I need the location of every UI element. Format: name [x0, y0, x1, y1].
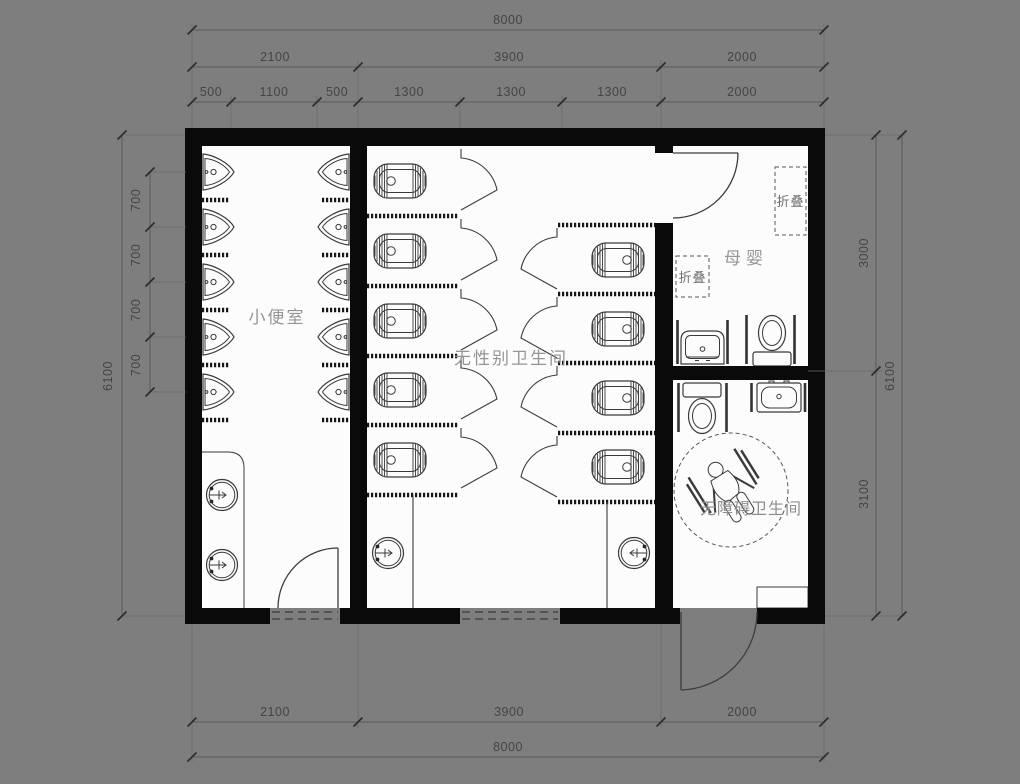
round-sink [207, 480, 238, 511]
wall-interior-right [655, 223, 673, 608]
dim-label: 1100 [260, 85, 289, 99]
wall-bottom-segment [340, 608, 460, 624]
wall-right [808, 128, 825, 624]
dim-label: 700 [129, 244, 143, 266]
dim-label: 6100 [101, 361, 115, 391]
accessible-sink [757, 381, 801, 412]
wall-bottom-segment [757, 608, 825, 624]
dimensions-bottom: 2100 3900 2000 8000 [188, 625, 829, 762]
dim-label: 2000 [727, 85, 757, 99]
wall-interior-left [350, 146, 367, 608]
round-sink [373, 538, 404, 569]
mother-baby-label: 母婴 [724, 249, 768, 268]
folding-table-label: 折叠 [678, 270, 706, 285]
folding-table-label: 折叠 [776, 194, 804, 209]
dimensions-left: 700 700 700 700 6100 [101, 131, 186, 621]
wall-interior-right-stub [655, 146, 673, 153]
dim-label: 2000 [727, 50, 757, 64]
door-swing-accessible [681, 612, 757, 690]
dim-label: 2000 [727, 705, 757, 719]
dim-label: 3100 [857, 479, 871, 509]
door-threshold [272, 612, 338, 619]
dim-label: 1300 [496, 85, 526, 99]
round-sink [619, 538, 650, 569]
dim-label: 700 [129, 354, 143, 376]
dim-label: 1300 [597, 85, 627, 99]
round-sink [207, 550, 238, 581]
dimensions-top: 8000 2100 3900 2000 500 1100 500 1300 13… [188, 13, 829, 128]
urinal-room-label: 小便室 [249, 308, 306, 327]
entrance-threshold [462, 612, 558, 619]
dim-label: 3000 [857, 238, 871, 268]
dim-label: 3900 [494, 705, 524, 719]
wall-left [185, 128, 202, 624]
dim-label: 8000 [493, 740, 523, 754]
dim-label: 2100 [260, 705, 290, 719]
wall-top [185, 128, 825, 146]
floor-plan-page: 小便室 [0, 0, 1020, 784]
dim-label: 3900 [494, 50, 524, 64]
dim-label: 500 [326, 85, 348, 99]
dim-label: 700 [129, 299, 143, 321]
wall-bottom-segment [185, 608, 270, 624]
floor-plan: 小便室 [0, 0, 1020, 784]
dim-label: 8000 [493, 13, 523, 27]
dim-label: 1300 [394, 85, 424, 99]
wall-room-divider [655, 366, 808, 380]
dim-label: 700 [129, 189, 143, 211]
dim-label: 2100 [260, 50, 290, 64]
counter-sink [681, 331, 724, 364]
dim-label: 500 [200, 85, 222, 99]
unisex-room-label: 无性别卫生间 [454, 349, 568, 368]
wall-bottom-segment [560, 608, 680, 624]
accessible-room-label: 无障碍卫生间 [700, 500, 802, 518]
dim-label: 6100 [883, 361, 897, 391]
